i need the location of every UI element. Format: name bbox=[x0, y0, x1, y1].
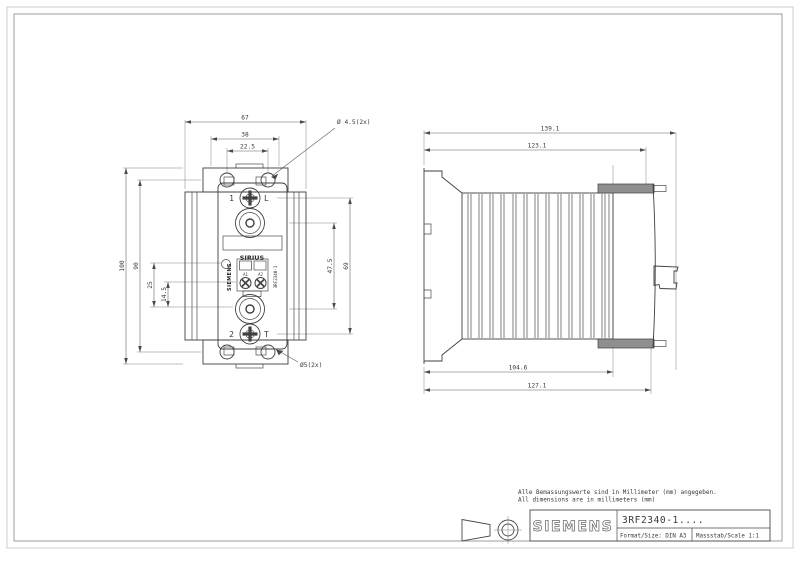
load-terminal-top-outer bbox=[236, 209, 265, 238]
coil-terminal-window-a2 bbox=[254, 261, 266, 270]
front-flange-top-tab bbox=[236, 164, 263, 168]
side-rail-bracket-top-step bbox=[654, 186, 666, 192]
side-terminal-notches bbox=[424, 224, 431, 298]
siemens-logo: SIEMENS bbox=[533, 519, 614, 535]
side-body bbox=[424, 168, 678, 364]
coil-block-lower-tab bbox=[243, 291, 261, 297]
front-heatsink-fin-edges bbox=[192, 192, 299, 340]
dim-front-hole-spacing-v: 90 bbox=[133, 262, 140, 270]
load-terminal-bottom-hole bbox=[246, 305, 254, 313]
side-heatsink-fins bbox=[468, 194, 609, 338]
side-rail-bracket-bottom bbox=[598, 339, 654, 348]
title-scale: Massstab/Scale 1:1 bbox=[696, 534, 759, 540]
load-terminal-bottom-outer bbox=[236, 295, 265, 324]
siemens-vertical-label: SIEMENS bbox=[227, 263, 233, 291]
label-hole-top-diameter: Ø 4.5(2x) bbox=[337, 118, 371, 126]
side-rail-bracket-top bbox=[598, 184, 654, 193]
front-heatsink-outline bbox=[185, 192, 306, 340]
dim-front-screw-span: 69 bbox=[343, 262, 350, 270]
dim-side-depth-max: 139.1 bbox=[541, 126, 560, 133]
front-body bbox=[185, 164, 306, 368]
terminal-1-number: 1 bbox=[229, 194, 234, 203]
note-english: All dimensions are in millimeters (mm) bbox=[518, 497, 655, 504]
side-view: 139.1 123.1 104.6 127.1 bbox=[424, 126, 678, 395]
note-german: Alle Bemassungswerte sind in Millimeter … bbox=[518, 489, 717, 496]
coil-terminal-window-a1 bbox=[240, 261, 252, 270]
model-vertical-label: 3RF2340-1 bbox=[273, 265, 278, 288]
face-label-plate bbox=[223, 236, 282, 250]
drawing-sheet: 67 38 22.5 100 90 25 14.5 47.5 69 Ø 4.5(… bbox=[0, 0, 800, 566]
dim-front-terminal-span: 47.5 bbox=[327, 258, 334, 273]
dim-front-led-offset: 25 bbox=[147, 281, 154, 289]
dim-front-coil-offset: 14.5 bbox=[161, 287, 168, 302]
dim-side-depth-body: 123.1 bbox=[528, 143, 547, 150]
side-heatsink-outline bbox=[462, 193, 613, 339]
projection-cone-icon bbox=[462, 520, 490, 542]
projection-centerlines bbox=[494, 516, 522, 544]
label-hole-bottom-diameter: Ø5(2x) bbox=[300, 361, 322, 369]
terminal-1-letter: L bbox=[264, 194, 269, 203]
coil-terminal-a1-label: A1 bbox=[243, 272, 248, 277]
notes: Alle Bemassungswerte sind in Millimeter … bbox=[518, 489, 717, 504]
projection-symbol bbox=[462, 516, 522, 544]
screw-terminal-1-cross-icon bbox=[243, 191, 258, 206]
coil-terminal-a2-label: A2 bbox=[258, 272, 263, 277]
dim-side-depth-bracket: 127.1 bbox=[528, 383, 547, 390]
load-terminal-bottom-inner bbox=[240, 299, 261, 320]
dim-front-width-outer: 67 bbox=[241, 115, 249, 122]
frame-outer-border bbox=[7, 7, 793, 548]
front-dimension-arrows bbox=[124, 120, 352, 364]
title-block: SIEMENS 3RF2340-1.... Format/Size: DIN A… bbox=[530, 510, 770, 541]
front-extension-lines bbox=[123, 120, 353, 364]
load-terminal-top-hole bbox=[246, 219, 254, 227]
side-flange-tab-bottom bbox=[424, 339, 462, 361]
side-din-clip bbox=[654, 266, 678, 289]
dim-front-height-outer: 100 bbox=[119, 260, 126, 271]
terminal-2-number: 2 bbox=[229, 330, 234, 339]
terminal-2-letter: T bbox=[264, 330, 269, 339]
frame-inner-border bbox=[14, 14, 782, 541]
title-part-number: 3RF2340-1.... bbox=[622, 515, 704, 526]
front-view: 67 38 22.5 100 90 25 14.5 47.5 69 Ø 4.5(… bbox=[119, 115, 371, 370]
front-device-face: 1 L SIRIUS A1 A2 SIEMENS bbox=[218, 177, 287, 355]
load-terminal-top-inner bbox=[240, 213, 261, 234]
drawing-canvas: 67 38 22.5 100 90 25 14.5 47.5 69 Ø 4.5(… bbox=[0, 0, 800, 566]
front-flange-bottom-tab bbox=[236, 364, 263, 368]
front-dimension-lines bbox=[126, 122, 350, 364]
title-format: Format/Size: DIN A3 bbox=[620, 534, 687, 540]
screw-terminal-2-cross-icon bbox=[243, 327, 258, 342]
side-flange-tab-top bbox=[424, 171, 462, 193]
dim-front-width-flange: 38 bbox=[241, 132, 249, 139]
dim-front-hole-spacing-h: 22.5 bbox=[240, 144, 255, 151]
side-rail-bracket-bottom-step bbox=[654, 341, 666, 347]
dim-side-depth-rail: 104.6 bbox=[509, 365, 528, 372]
drawing-frame bbox=[7, 7, 793, 548]
